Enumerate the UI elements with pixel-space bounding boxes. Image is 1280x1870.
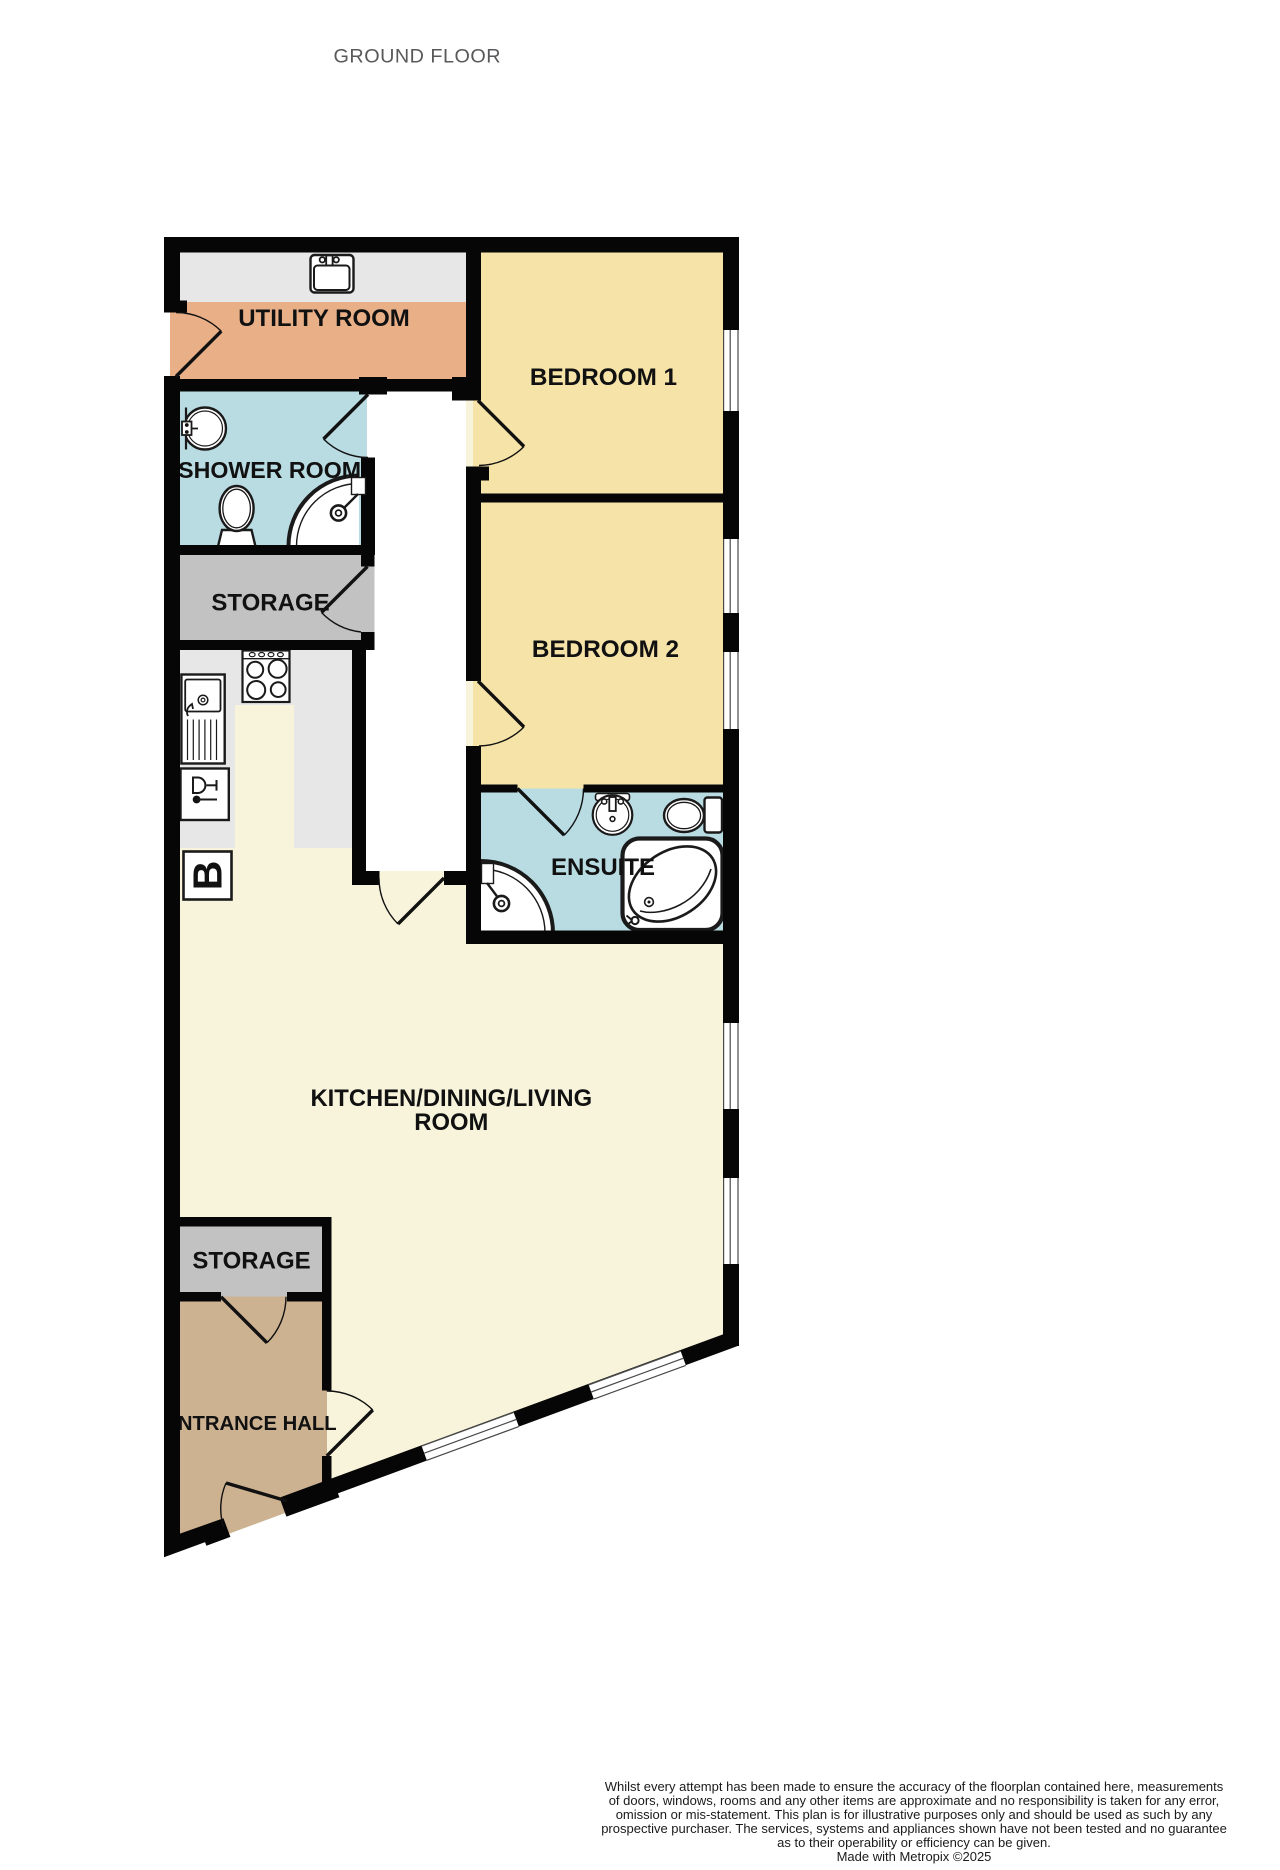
svg-text:UTILITY ROOM: UTILITY ROOM (238, 305, 410, 332)
svg-text:B: B (185, 861, 231, 891)
svg-text:BEDROOM 1: BEDROOM 1 (530, 364, 677, 391)
svg-text:STORAGE: STORAGE (211, 590, 329, 617)
svg-text:SHOWER ROOM: SHOWER ROOM (178, 457, 361, 483)
svg-text:ROOM: ROOM (414, 1109, 488, 1136)
svg-text:STORAGE: STORAGE (192, 1248, 310, 1275)
svg-text:as to their operability or eff: as to their operability or efficiency ca… (777, 1835, 1051, 1850)
svg-text:prospective purchaser. The ser: prospective purchaser. The services, sys… (601, 1821, 1227, 1836)
svg-text:Whilst every attempt has been: Whilst every attempt has been made to en… (605, 1779, 1224, 1794)
svg-text:omission or mis-statement. Thi: omission or mis-statement. This plan is … (616, 1807, 1213, 1822)
svg-text:Made with Metropix ©2025: Made with Metropix ©2025 (837, 1849, 992, 1864)
svg-text:BEDROOM 2: BEDROOM 2 (532, 636, 679, 663)
svg-text:of doors, windows, rooms and a: of doors, windows, rooms and any other i… (609, 1793, 1220, 1808)
svg-text:GROUND FLOOR: GROUND FLOOR (334, 46, 502, 68)
svg-text:ENSUITE: ENSUITE (551, 854, 655, 881)
svg-text:ENTRANCE HALL: ENTRANCE HALL (164, 1413, 336, 1435)
